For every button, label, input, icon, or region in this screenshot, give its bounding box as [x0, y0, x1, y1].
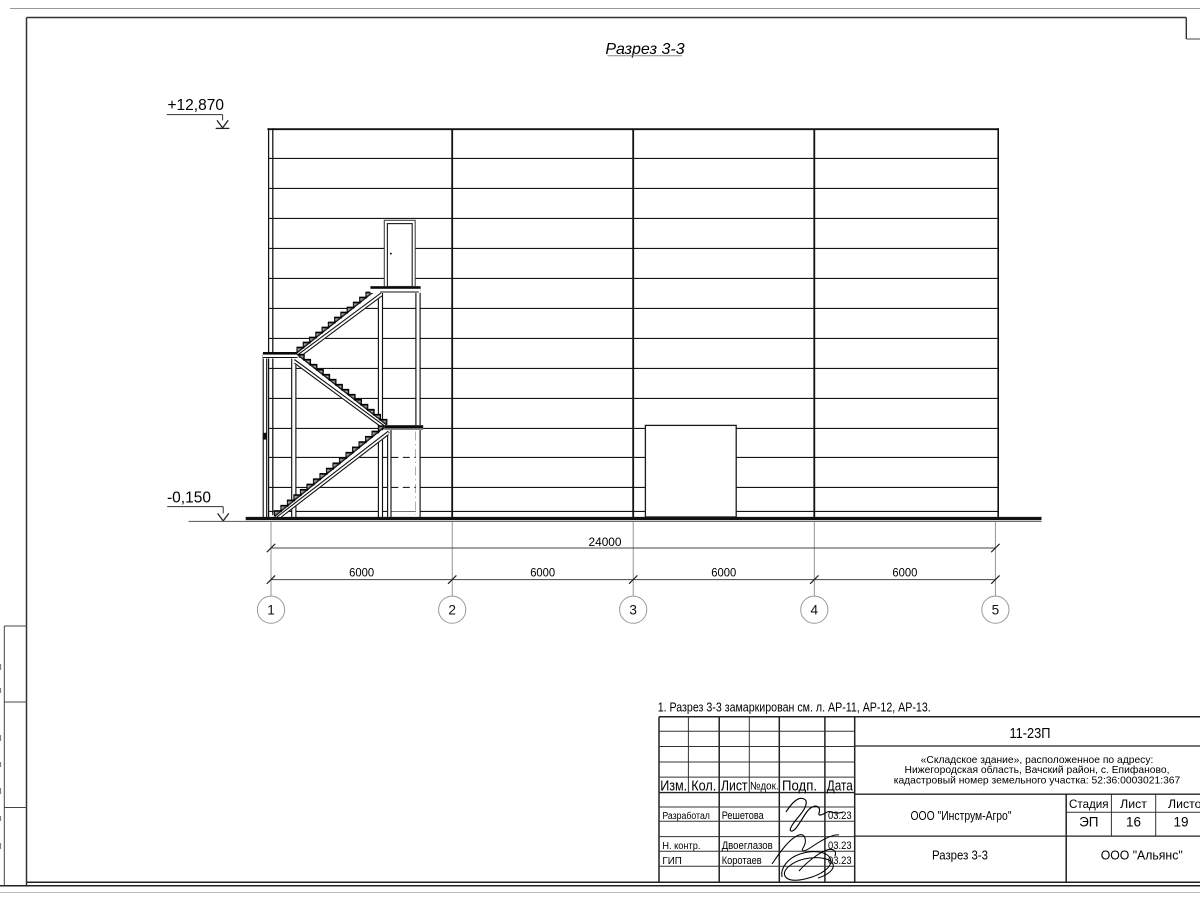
svg-text:Разрез 3-3: Разрез 3-3	[932, 849, 988, 863]
svg-text:Подп.: Подп.	[782, 778, 817, 794]
svg-text:2: 2	[448, 603, 456, 618]
svg-text:6000: 6000	[349, 565, 374, 579]
svg-text:6000: 6000	[530, 565, 555, 579]
svg-text:11-23П: 11-23П	[1010, 725, 1051, 742]
svg-text:3: 3	[629, 603, 637, 618]
svg-text:24000: 24000	[589, 535, 622, 549]
svg-text:Н. контр.: Н. контр.	[662, 841, 700, 852]
svg-text:5: 5	[992, 603, 1000, 618]
svg-text:6000: 6000	[711, 565, 736, 579]
svg-text:Стадия: Стадия	[1069, 797, 1109, 811]
svg-text:Изм.: Изм.	[660, 778, 687, 794]
svg-text:ЭП: ЭП	[1079, 815, 1098, 830]
svg-text:Кол.: Кол.	[691, 778, 716, 794]
svg-text:ООО "Инструм-Агро": ООО "Инструм-Агро"	[911, 809, 1012, 823]
svg-text:ООО "Альянс": ООО "Альянс"	[1101, 848, 1183, 863]
svg-text:Коротаев: Коротаев	[722, 855, 762, 867]
svg-text:03.23: 03.23	[828, 840, 852, 852]
svg-text:03.23: 03.23	[828, 855, 852, 867]
svg-text:Разработал: Разработал	[662, 810, 710, 822]
svg-text:Решетова: Решетова	[722, 810, 765, 822]
svg-text:-0,150: -0,150	[167, 490, 211, 507]
svg-text:+12,870: +12,870	[168, 97, 225, 114]
svg-text:Нижегородская область, Вачский: Нижегородская область, Вачский район, с.…	[905, 764, 1170, 776]
svg-text:№док.: №док.	[750, 781, 779, 793]
svg-text:Дата: Дата	[827, 778, 854, 794]
svg-text:Двоеглазов: Двоеглазов	[722, 840, 773, 852]
svg-text:4: 4	[811, 603, 819, 618]
svg-text:Лист: Лист	[721, 778, 748, 794]
svg-text:16: 16	[1126, 815, 1141, 830]
svg-text:кадастровый номер земельного у: кадастровый номер земельного участка: 52…	[894, 775, 1181, 786]
svg-text:1. Разрез 3-3 замаркирован см.: 1. Разрез 3-3 замаркирован см. л. АР-11,…	[658, 700, 931, 715]
svg-text:1: 1	[267, 603, 275, 618]
svg-text:19: 19	[1173, 815, 1188, 830]
svg-text:ГИП: ГИП	[662, 856, 682, 867]
svg-text:Листов: Листов	[1168, 797, 1200, 811]
svg-text:Лист: Лист	[1120, 797, 1147, 811]
svg-text:6000: 6000	[892, 565, 917, 579]
